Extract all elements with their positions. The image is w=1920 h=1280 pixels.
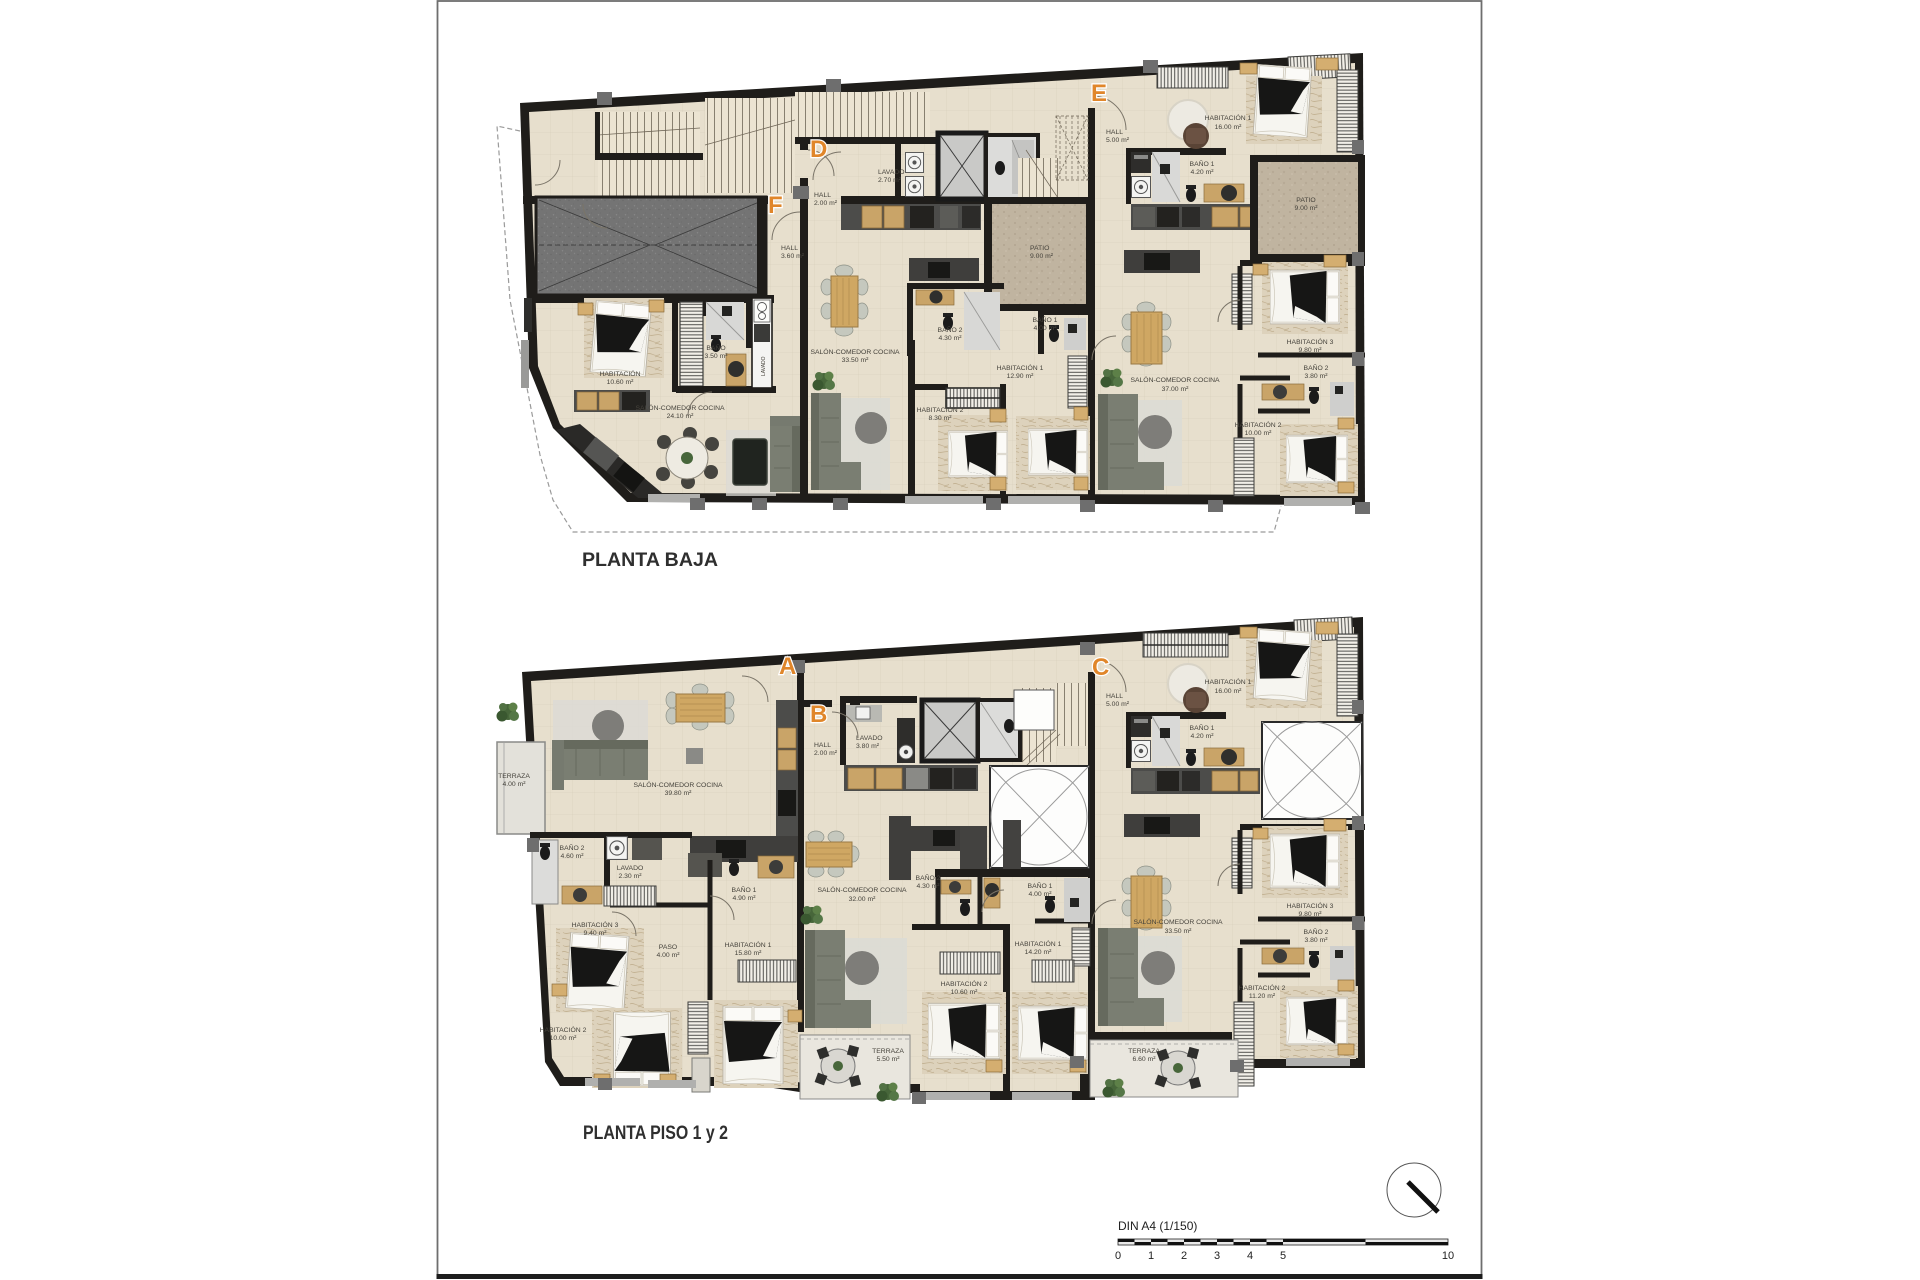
svg-text:HABITACIÓN: HABITACIÓN xyxy=(599,369,640,378)
svg-text:HALL: HALL xyxy=(1106,693,1123,700)
svg-text:BAÑO 2: BAÑO 2 xyxy=(916,873,941,882)
svg-text:HALL: HALL xyxy=(814,192,831,199)
svg-text:TERRAZA: TERRAZA xyxy=(1128,1048,1160,1055)
svg-text:10.60 m²: 10.60 m² xyxy=(951,989,979,996)
svg-text:10.60 m²: 10.60 m² xyxy=(607,379,635,386)
svg-text:33.50 m²: 33.50 m² xyxy=(842,357,870,364)
svg-text:BAÑO 1: BAÑO 1 xyxy=(1190,723,1215,732)
svg-text:SALÓN-COMEDOR COCINA: SALÓN-COMEDOR COCINA xyxy=(635,403,725,412)
svg-text:4: 4 xyxy=(1247,1250,1253,1262)
svg-text:SALÓN-COMEDOR COCINA: SALÓN-COMEDOR COCINA xyxy=(817,885,907,894)
svg-text:PATIO: PATIO xyxy=(1030,245,1049,252)
svg-text:HABITACIÓN 2: HABITACIÓN 2 xyxy=(1239,983,1286,992)
svg-text:PASO: PASO xyxy=(659,944,677,951)
svg-text:4.00 m²: 4.00 m² xyxy=(1028,891,1052,898)
svg-text:0: 0 xyxy=(1115,1250,1121,1262)
svg-text:BAÑO 2: BAÑO 2 xyxy=(1304,927,1329,936)
svg-text:15.80 m²: 15.80 m² xyxy=(735,950,763,957)
svg-text:3: 3 xyxy=(1214,1250,1220,1262)
svg-text:9.00 m²: 9.00 m² xyxy=(1294,205,1318,212)
svg-text:HABITACIÓN 1: HABITACIÓN 1 xyxy=(1205,113,1252,122)
svg-text:LAVADO: LAVADO xyxy=(878,169,905,176)
svg-text:HALL: HALL xyxy=(1106,129,1123,136)
svg-text:SALÓN-COMEDOR COCINA: SALÓN-COMEDOR COCINA xyxy=(1133,917,1223,926)
svg-text:TERRAZA: TERRAZA xyxy=(498,773,530,780)
svg-text:4.00 m²: 4.00 m² xyxy=(1033,325,1057,332)
svg-text:HABITACIÓN 2: HABITACIÓN 2 xyxy=(1235,420,1282,429)
svg-text:TERRAZA: TERRAZA xyxy=(872,1048,904,1055)
svg-text:9.80 m²: 9.80 m² xyxy=(1298,347,1322,354)
svg-text:B: B xyxy=(810,701,827,728)
svg-text:2.30 m²: 2.30 m² xyxy=(618,873,642,880)
svg-text:4.30 m²: 4.30 m² xyxy=(916,883,940,890)
svg-text:SALÓN-COMEDOR COCINA: SALÓN-COMEDOR COCINA xyxy=(810,347,900,356)
svg-text:HABITACIÓN 3: HABITACIÓN 3 xyxy=(1287,337,1334,346)
svg-text:4.00 m²: 4.00 m² xyxy=(502,781,526,788)
svg-text:BAÑO 1: BAÑO 1 xyxy=(1190,159,1215,168)
svg-text:5.00 m²: 5.00 m² xyxy=(1106,137,1130,144)
svg-text:9.80 m²: 9.80 m² xyxy=(1298,911,1322,918)
svg-text:LAVADO: LAVADO xyxy=(856,735,883,742)
svg-text:PATIO: PATIO xyxy=(1296,197,1315,204)
svg-text:3.50 m²: 3.50 m² xyxy=(704,353,728,360)
svg-text:HABITACIÓN 3: HABITACIÓN 3 xyxy=(1287,901,1334,910)
svg-text:E: E xyxy=(1091,80,1107,107)
svg-text:3.80 m²: 3.80 m² xyxy=(1304,373,1328,380)
svg-text:HABITACIÓN 3: HABITACIÓN 3 xyxy=(572,920,619,929)
svg-text:HABITACIÓN 2: HABITACIÓN 2 xyxy=(540,1025,587,1034)
svg-text:9.00 m²: 9.00 m² xyxy=(1030,253,1054,260)
svg-text:8.30 m²: 8.30 m² xyxy=(928,415,952,422)
svg-text:5.00 m²: 5.00 m² xyxy=(1106,701,1130,708)
svg-text:SALÓN-COMEDOR COCINA: SALÓN-COMEDOR COCINA xyxy=(1130,375,1220,384)
svg-text:24.10 m²: 24.10 m² xyxy=(667,413,695,420)
svg-text:4.90 m²: 4.90 m² xyxy=(732,895,756,902)
svg-text:4.20 m²: 4.20 m² xyxy=(1190,169,1214,176)
svg-text:4.60 m²: 4.60 m² xyxy=(560,853,584,860)
svg-text:PLANTA BAJA: PLANTA BAJA xyxy=(582,550,718,571)
svg-text:BAÑO 2: BAÑO 2 xyxy=(938,325,963,334)
svg-text:4.00 m²: 4.00 m² xyxy=(656,952,680,959)
svg-text:37.00 m²: 37.00 m² xyxy=(1162,386,1190,393)
svg-text:1: 1 xyxy=(1148,1250,1154,1262)
svg-text:D: D xyxy=(810,136,827,163)
svg-text:16.00 m²: 16.00 m² xyxy=(1215,688,1243,695)
svg-text:BAÑO 1: BAÑO 1 xyxy=(732,885,757,894)
svg-text:3.80 m²: 3.80 m² xyxy=(856,743,880,750)
svg-text:BAÑO 1: BAÑO 1 xyxy=(1033,315,1058,324)
svg-text:39.80 m²: 39.80 m² xyxy=(665,790,693,797)
svg-text:10.00 m²: 10.00 m² xyxy=(1245,430,1273,437)
svg-text:3.60 m²: 3.60 m² xyxy=(781,253,805,260)
svg-text:HALL: HALL xyxy=(814,742,831,749)
svg-text:16.00 m²: 16.00 m² xyxy=(1215,124,1243,131)
svg-text:BAÑO 1: BAÑO 1 xyxy=(1028,881,1053,890)
svg-text:11.20 m²: 11.20 m² xyxy=(1249,993,1276,1000)
svg-text:HABITACIÓN 1: HABITACIÓN 1 xyxy=(1205,677,1252,686)
svg-text:2.00 m²: 2.00 m² xyxy=(814,750,838,757)
svg-text:14.20 m²: 14.20 m² xyxy=(1025,949,1053,956)
svg-text:C: C xyxy=(1092,654,1109,681)
svg-text:10.00 m²: 10.00 m² xyxy=(550,1035,578,1042)
svg-text:LAVADO: LAVADO xyxy=(617,865,644,872)
svg-text:SALÓN-COMEDOR COCINA: SALÓN-COMEDOR COCINA xyxy=(633,780,723,789)
svg-text:4.30 m²: 4.30 m² xyxy=(938,335,962,342)
svg-text:HABITACIÓN 1: HABITACIÓN 1 xyxy=(1015,939,1062,948)
svg-text:BAÑO: BAÑO xyxy=(706,343,725,352)
svg-text:F: F xyxy=(768,192,783,219)
svg-text:HABITACIÓN 2: HABITACIÓN 2 xyxy=(941,979,988,988)
svg-text:5: 5 xyxy=(1280,1250,1286,1262)
svg-text:9.40 m²: 9.40 m² xyxy=(583,930,607,937)
svg-text:HABITACIÓN 1: HABITACIÓN 1 xyxy=(997,363,1044,372)
svg-text:12.90 m²: 12.90 m² xyxy=(1007,373,1035,380)
svg-text:4.20 m²: 4.20 m² xyxy=(1190,733,1214,740)
svg-text:2.70 m²: 2.70 m² xyxy=(878,177,902,184)
svg-text:3.80 m²: 3.80 m² xyxy=(1304,937,1328,944)
svg-text:5.50 m²: 5.50 m² xyxy=(876,1056,900,1063)
svg-text:BAÑO 2: BAÑO 2 xyxy=(560,843,585,852)
svg-text:6.60 m²: 6.60 m² xyxy=(1132,1056,1156,1063)
svg-text:LAVADO: LAVADO xyxy=(761,356,767,376)
svg-text:2: 2 xyxy=(1181,1250,1187,1262)
svg-text:33.50 m²: 33.50 m² xyxy=(1165,928,1193,935)
svg-text:10: 10 xyxy=(1442,1250,1454,1262)
svg-text:2.00 m²: 2.00 m² xyxy=(814,200,838,207)
svg-text:PLANTA PISO 1 y 2: PLANTA PISO 1 y 2 xyxy=(583,1123,728,1144)
svg-text:32.00 m²: 32.00 m² xyxy=(849,896,877,903)
svg-text:HABITACIÓN 2: HABITACIÓN 2 xyxy=(917,405,964,414)
svg-text:A: A xyxy=(779,653,796,680)
svg-text:BAÑO 2: BAÑO 2 xyxy=(1304,363,1329,372)
svg-text:HALL: HALL xyxy=(781,245,798,252)
svg-text:HABITACIÓN 1: HABITACIÓN 1 xyxy=(725,940,772,949)
svg-text:DIN A4 (1/150): DIN A4 (1/150) xyxy=(1118,1219,1197,1233)
